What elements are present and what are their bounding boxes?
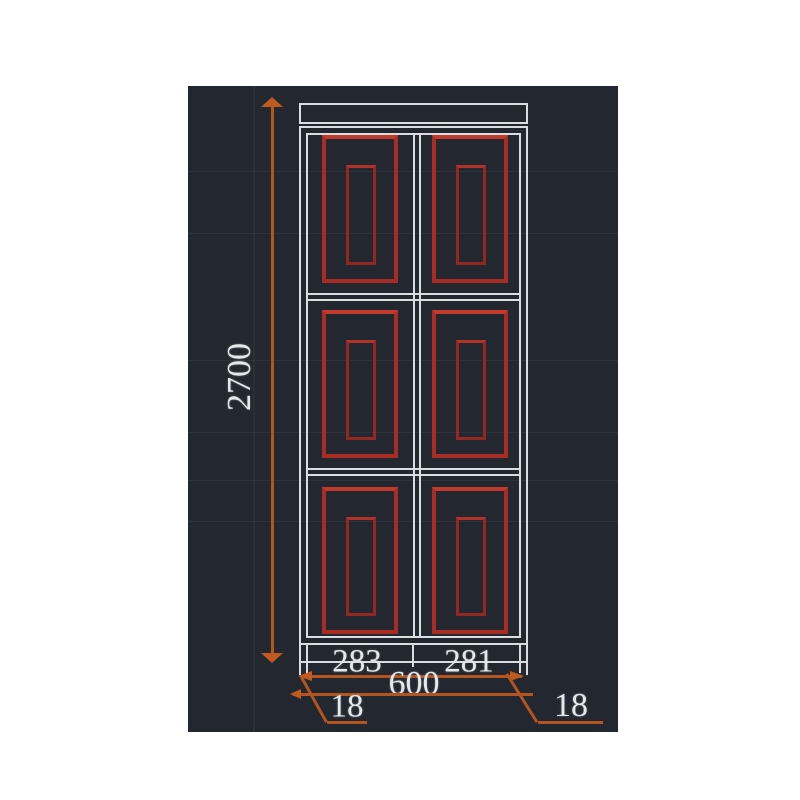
door-panel <box>322 487 398 634</box>
door-rail-upper <box>306 293 521 301</box>
door-panel <box>322 310 398 458</box>
dim-arrow-top <box>261 97 283 107</box>
door-panel <box>432 135 508 283</box>
dim-label-overall-height: 2700 <box>223 343 257 411</box>
cad-viewport: 2700 283 281 600 18 18 <box>188 86 618 732</box>
page: 2700 283 281 600 18 18 <box>0 0 800 800</box>
dim-label-frame-right: 18 <box>554 689 588 723</box>
door-rail-lower <box>306 468 521 476</box>
door-panel <box>322 135 398 283</box>
panel-inner-moulding <box>346 165 376 265</box>
extension-line <box>519 645 521 673</box>
extension-line <box>526 645 528 675</box>
dim-label-leaf-left: 283 <box>332 646 382 679</box>
dim-arrow-left-small <box>290 689 301 699</box>
leader-diagonal-left <box>299 675 327 723</box>
dim-label-leaf-right: 281 <box>444 646 494 679</box>
dim-arrow-bottom <box>261 653 283 663</box>
panel-inner-moulding <box>456 165 486 265</box>
panel-inner-moulding <box>456 517 486 616</box>
door-panel <box>432 310 508 458</box>
dim-label-frame-left: 18 <box>331 691 364 724</box>
extension-line <box>412 645 414 667</box>
panel-inner-moulding <box>456 340 486 440</box>
dim-line-overall-height <box>271 106 274 654</box>
door-transom <box>299 103 528 124</box>
panel-inner-moulding <box>346 517 376 616</box>
panel-inner-moulding <box>346 340 376 440</box>
door-mullion <box>413 133 421 638</box>
dim-line-frame-thickness <box>293 693 533 696</box>
door-panel <box>432 487 508 634</box>
